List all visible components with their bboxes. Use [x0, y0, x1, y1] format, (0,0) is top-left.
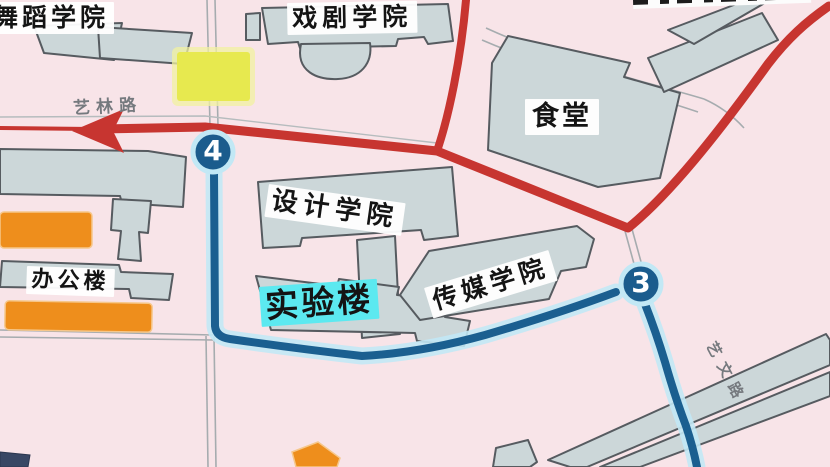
buildings — [0, 0, 830, 467]
highlight-buildings — [0, 47, 340, 467]
building-fragment-southwest — [0, 452, 30, 467]
label-drama-academy: 戏剧学院 — [287, 1, 418, 35]
building-drama-annex — [246, 13, 260, 40]
campus-map: 舞蹈学院 戏剧学院 食堂 设计学院 传媒学院 实验楼 办公楼 艺林路 艺文路 4… — [0, 0, 830, 467]
yellow-marker — [177, 52, 250, 101]
route-stop-3-number: 3 — [631, 266, 650, 299]
building-office-north — [0, 149, 186, 207]
building-drama-hall — [300, 43, 370, 79]
label-yilin-road: 艺林路 — [72, 90, 142, 119]
orange-building-1 — [0, 212, 92, 248]
building-office-mid — [111, 199, 151, 261]
orange-building-3 — [292, 442, 340, 467]
orange-building-2 — [5, 301, 152, 333]
map-canvas — [0, 0, 830, 467]
building-southeast-small — [493, 440, 537, 467]
route-stop-4-number: 4 — [203, 134, 222, 167]
label-office-building: 办公楼 — [26, 266, 115, 297]
label-lab-building: 实验楼 — [259, 279, 380, 327]
label-dance-academy: 舞蹈学院 — [0, 2, 114, 34]
label-canteen: 食堂 — [525, 99, 599, 135]
